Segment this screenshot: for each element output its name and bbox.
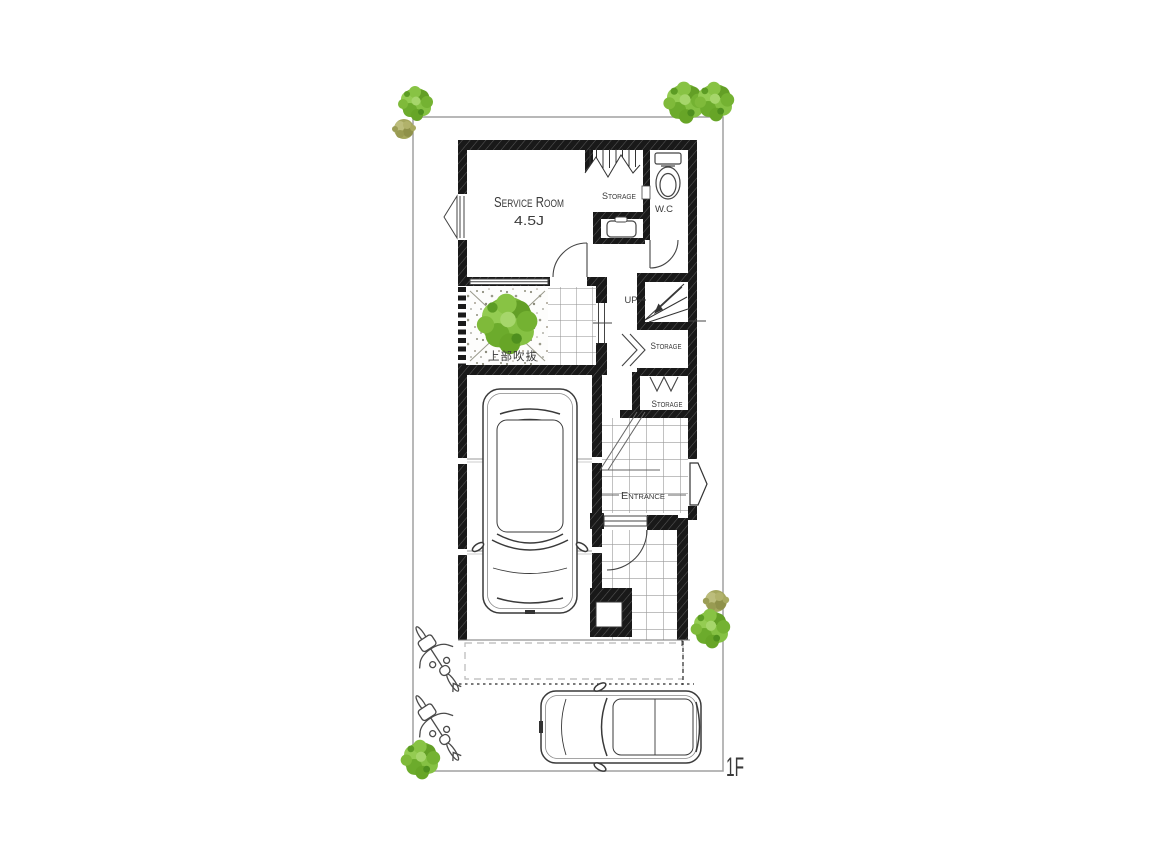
floor-plan-canvas: Service Room 4.5J Storage W.C UP Storage…	[0, 0, 1150, 865]
storage-hall-bifold-doors	[622, 334, 645, 366]
eaves-outline	[458, 640, 694, 685]
room-label-storage-under-stairs: Storage	[602, 191, 636, 202]
wc-door	[650, 240, 678, 268]
tree-top-left	[398, 86, 433, 121]
window-swing-marker	[444, 196, 457, 238]
garage	[467, 389, 592, 614]
toilet-icon	[655, 153, 681, 199]
void-label: 上部吹抜	[488, 349, 538, 363]
stairs-up	[638, 284, 688, 322]
service-room-door	[553, 243, 587, 277]
room-label-entrance: Entrance	[621, 491, 665, 502]
stairs-up-label: UP	[625, 295, 638, 305]
tree-top-right-2	[695, 82, 735, 122]
room-label-service-room: Service Room	[494, 194, 564, 211]
floor-label: 1F	[726, 752, 744, 782]
tree-bottom-left	[401, 740, 441, 780]
room-size-service-room: 4.5J	[514, 213, 544, 228]
room-label-storage-entrance: Storage	[652, 399, 683, 410]
tree-right	[691, 609, 731, 649]
floor-plan-drawing: Service Room 4.5J Storage W.C UP Storage…	[0, 0, 1150, 865]
street-car-icon	[539, 681, 701, 773]
room-label-storage-hall: Storage	[651, 341, 682, 352]
room-label-wc: W.C	[655, 204, 673, 215]
washbasin-icon	[607, 217, 636, 237]
garage-car-icon	[471, 389, 589, 614]
entrance-door-arrow	[690, 463, 707, 505]
tree-olive-right	[703, 590, 729, 612]
storage-entrance-folding-door	[650, 377, 678, 391]
void-deck	[548, 287, 596, 365]
